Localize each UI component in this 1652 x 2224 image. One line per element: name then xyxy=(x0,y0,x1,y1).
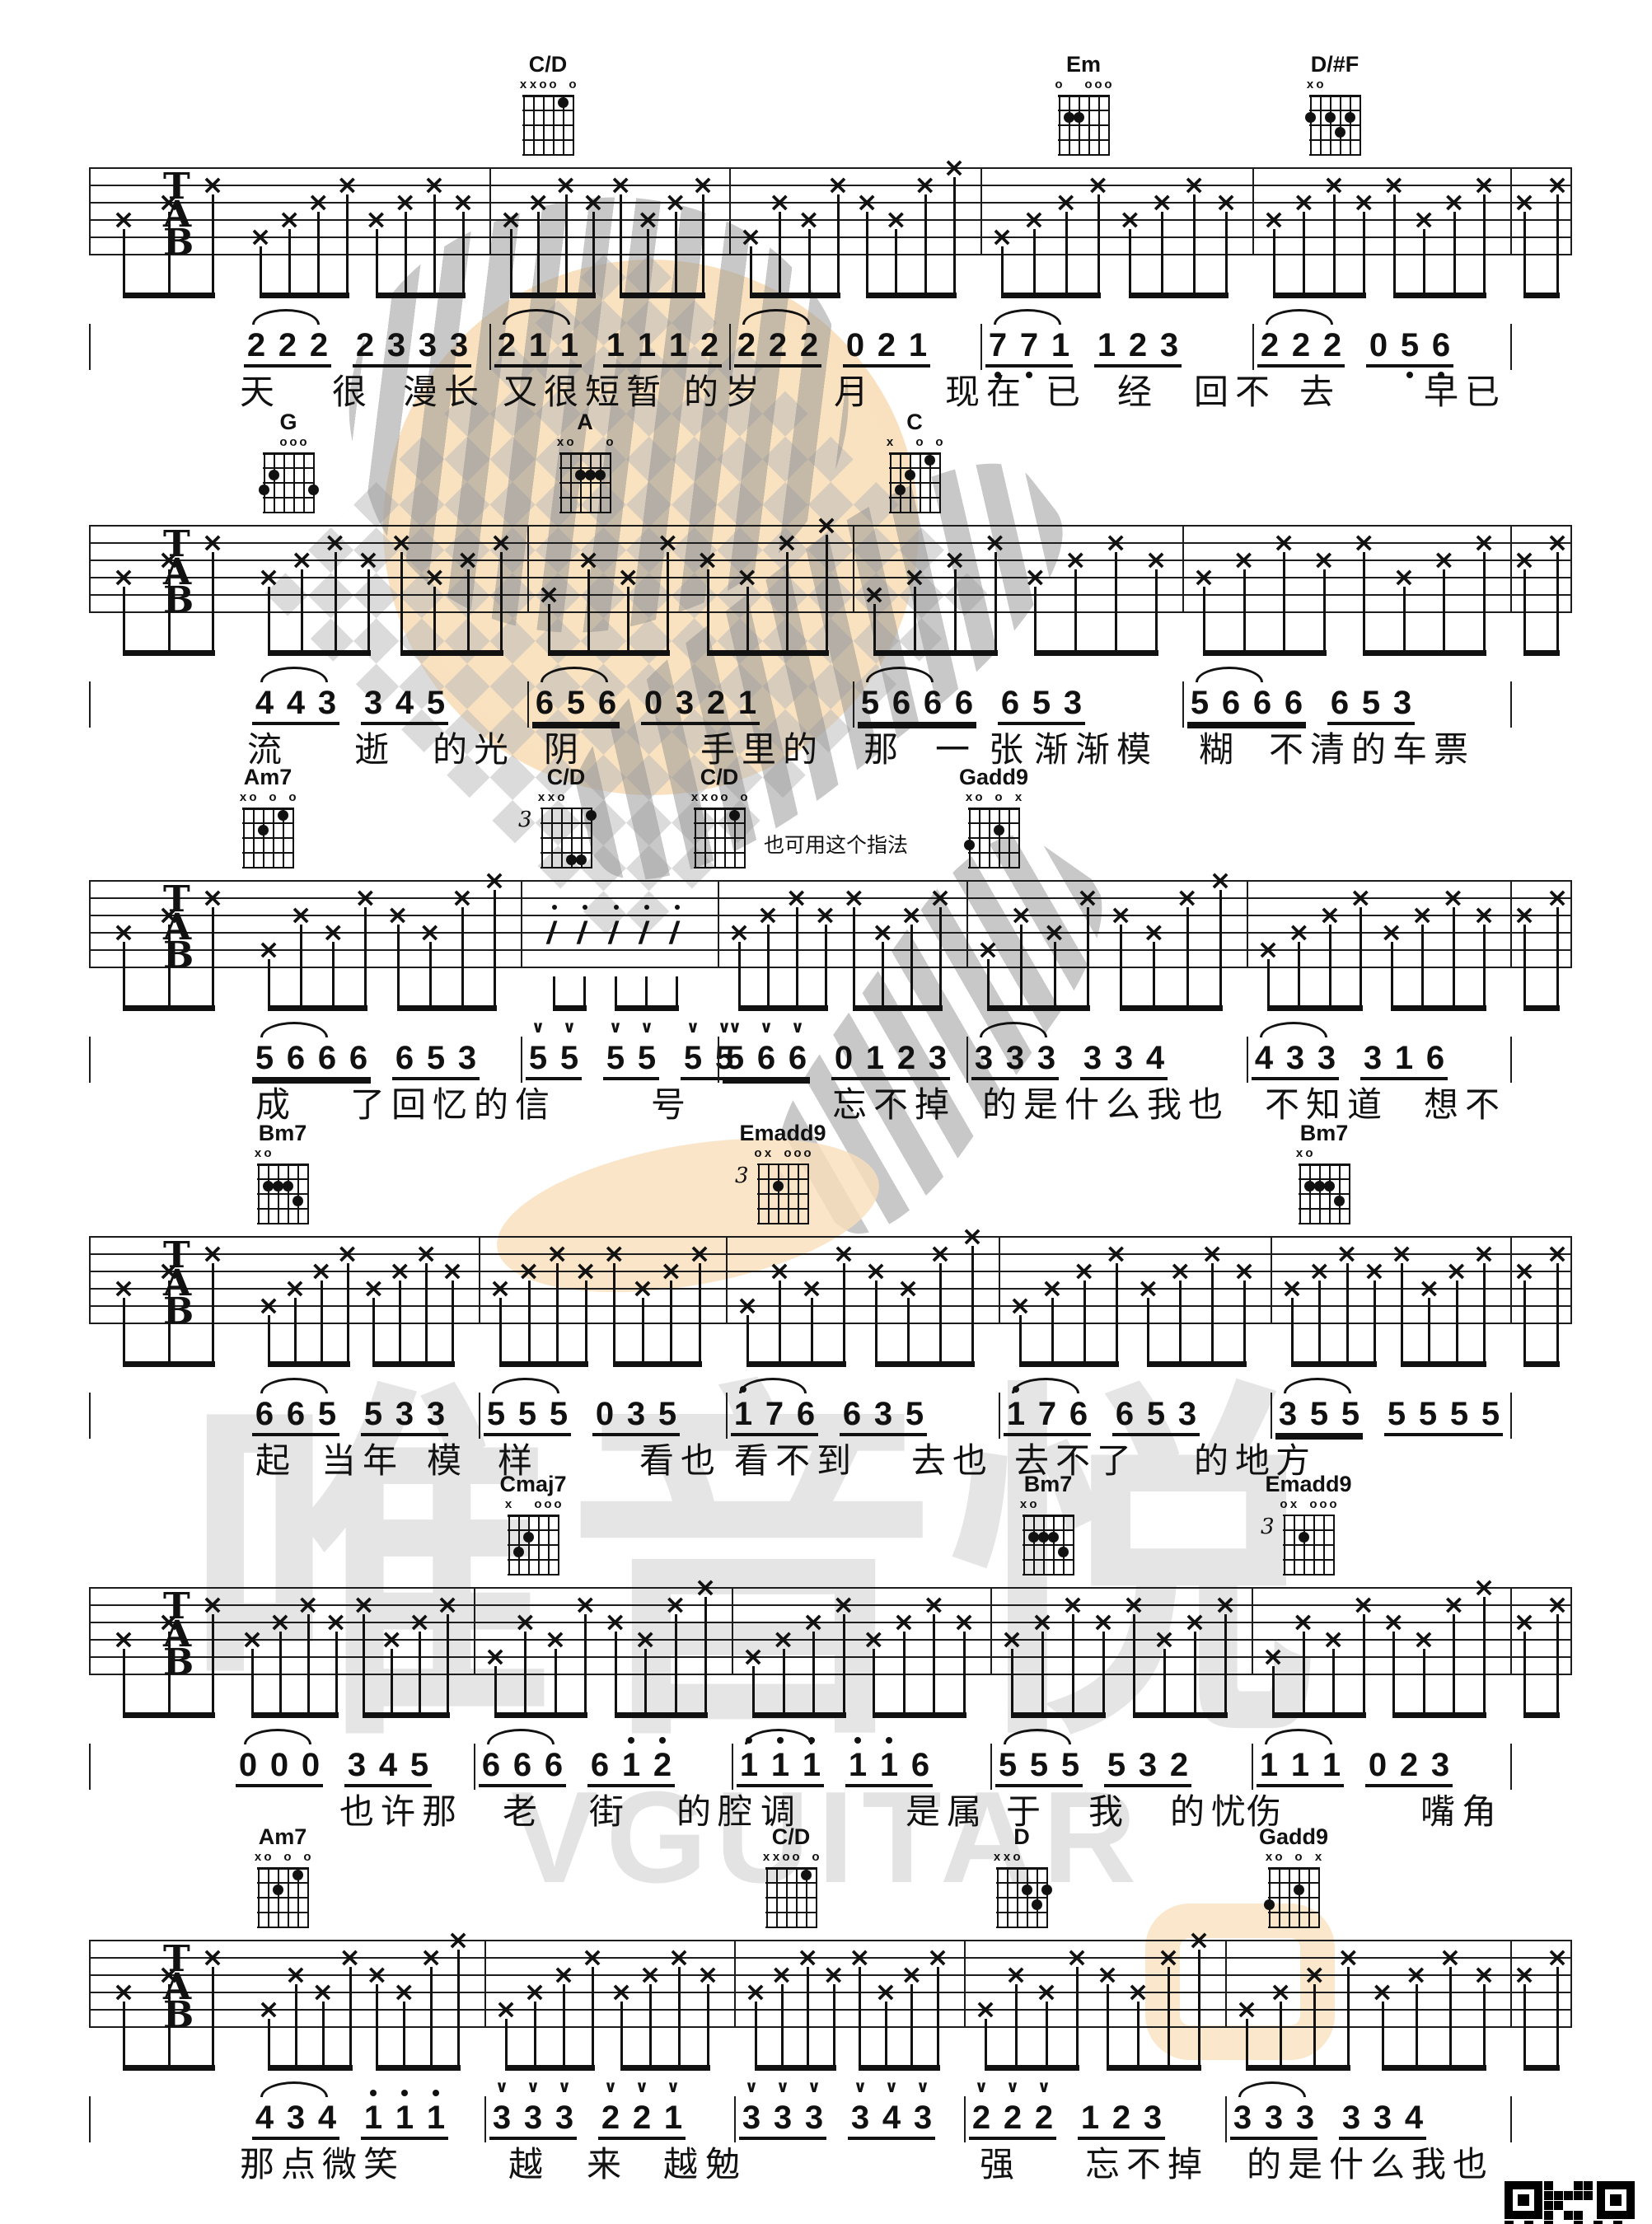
note-stem xyxy=(866,212,868,293)
beam xyxy=(123,650,215,656)
jianpu-note: 1 xyxy=(1322,1749,1341,1782)
note-stem xyxy=(885,2002,887,2065)
note-stem xyxy=(1225,212,1228,293)
jianpu-note: 6 xyxy=(590,1749,610,1782)
downstroke-mark: ∨ xyxy=(728,1019,742,1036)
beam xyxy=(1011,1712,1106,1718)
chord-grid-line xyxy=(757,1223,808,1224)
note-stem xyxy=(349,1967,352,2065)
jianpu-digit: 4 xyxy=(1254,1042,1274,1075)
jianpu-note: 4 xyxy=(1404,2101,1424,2134)
note-stem xyxy=(403,2002,405,2065)
chord-grid-line xyxy=(278,1867,279,1928)
chord-string-mark: x xyxy=(547,791,555,803)
note-stem xyxy=(268,587,270,650)
chord-grid-line xyxy=(278,1164,279,1224)
chord-grid-line xyxy=(1033,1515,1035,1576)
note-stem xyxy=(826,535,828,650)
jianpu-digit: 1 xyxy=(737,686,757,719)
note-stem xyxy=(954,569,957,650)
note-stem xyxy=(1051,1298,1054,1361)
note-stem xyxy=(1186,907,1189,1005)
chord-grid-line xyxy=(573,95,574,156)
note-stem xyxy=(924,194,927,293)
jianpu-beam-group: 334 xyxy=(1339,2101,1426,2140)
note-stem xyxy=(553,976,555,1005)
note-stem xyxy=(752,1666,755,1712)
note-stem xyxy=(1523,1281,1526,1361)
chord-diagram: Emoooo xyxy=(1044,52,1123,167)
jianpu-digit: 1 xyxy=(395,2101,414,2134)
note-stem xyxy=(1203,587,1205,650)
staff-line xyxy=(89,236,1572,238)
chord-string-mark: x xyxy=(519,78,527,91)
qr-module xyxy=(1554,2201,1563,2210)
chord-grid-line xyxy=(1283,1515,1334,1516)
jianpu-digit: 2 xyxy=(877,329,896,362)
chord-grid-line xyxy=(1283,1544,1334,1546)
note-stem xyxy=(1298,942,1300,1005)
jianpu-digit: 3 xyxy=(1037,1042,1056,1075)
note-stem xyxy=(620,194,622,293)
note-stem xyxy=(376,1984,378,2065)
staff-barline xyxy=(479,1236,480,1324)
chord-finger-dot xyxy=(905,470,915,480)
beam xyxy=(987,1005,1090,1011)
beam xyxy=(1147,1361,1247,1367)
jianpu-digit: 1 xyxy=(426,2101,446,2134)
chord-grid-line xyxy=(1108,95,1110,156)
beam xyxy=(1246,2065,1350,2071)
chord-string-mark: x xyxy=(1019,1498,1027,1510)
jianpu-beam-group: 0321 xyxy=(641,686,760,725)
jianpu-note: 7 xyxy=(1019,329,1039,362)
chord-grid-line xyxy=(1340,95,1341,156)
chord-grid-line xyxy=(1339,1164,1341,1224)
chord-grid-line xyxy=(297,1164,299,1224)
lyric: 来 xyxy=(587,2147,628,2182)
staff-line xyxy=(89,594,1572,596)
jianpu-note: 3 xyxy=(1392,686,1412,719)
jianpu-digit: 4 xyxy=(286,686,306,719)
jianpu-digit: 1 xyxy=(559,329,579,362)
downstroke-mark: ∨ xyxy=(531,1019,545,1036)
lyric: 张 xyxy=(989,733,1030,767)
note-stem xyxy=(268,1315,270,1361)
chord-grid-line xyxy=(1309,95,1360,97)
beam xyxy=(268,1005,367,1011)
note-stem xyxy=(843,1263,845,1361)
note-stem xyxy=(933,1614,935,1712)
jianpu-digit: 3 xyxy=(347,1749,367,1782)
strum-slash: / xyxy=(637,918,650,949)
note-stem xyxy=(1054,942,1056,1005)
jianpu-measure: 443345 xyxy=(252,686,526,725)
jianpu-digit: 2 xyxy=(1169,1749,1189,1782)
jianpu-note: 3 xyxy=(426,1398,446,1430)
chord-grid-line xyxy=(541,808,592,809)
chord-grid-line xyxy=(263,497,314,499)
lyric: 一 xyxy=(935,733,976,767)
beam xyxy=(123,1712,215,1718)
jianpu-digit: 3 xyxy=(873,1398,893,1430)
tie-arc xyxy=(1266,309,1333,325)
jianpu-digit: 5 xyxy=(549,1398,569,1430)
beam xyxy=(866,293,957,298)
jianpu-digit: 3 xyxy=(773,2101,793,2134)
note-stem xyxy=(779,1281,781,1361)
jianpu-note: 7 xyxy=(988,329,1008,362)
jianpu-note: 1 xyxy=(1080,2101,1100,2134)
jianpu-measure: 3∨3∨3∨2∨2∨1∨ xyxy=(489,2101,732,2140)
strum-slash: / xyxy=(667,918,681,949)
jianpu-note: 1 xyxy=(426,2101,446,2134)
numbers-barline xyxy=(474,1744,475,1790)
note-stem xyxy=(1015,1984,1018,2065)
beam xyxy=(123,1005,215,1011)
downstroke-mark: ∨ xyxy=(640,1019,653,1036)
jianpu-measure: 2222333 xyxy=(244,329,488,368)
jianpu-digit: 1 xyxy=(1006,1398,1026,1430)
staff-barline xyxy=(1510,167,1512,255)
chord-string-mark: o xyxy=(1013,1851,1021,1863)
jianpu-digit: 3 xyxy=(1005,1042,1025,1075)
jianpu-measure: 5666653 xyxy=(252,1042,519,1080)
chord-grid-line xyxy=(1079,95,1080,156)
chord-grid-line xyxy=(1046,1867,1048,1928)
jianpu-digit: 2 xyxy=(1260,329,1280,362)
jianpu-measure: 333334 xyxy=(1230,2101,1509,2140)
jianpu-measure: 5∨5∨5∨5∨5∨5∨ xyxy=(526,1042,716,1080)
jianpu-digit: 7 xyxy=(988,329,1008,362)
note-stem xyxy=(1374,1281,1376,1361)
note-stem xyxy=(1556,194,1559,293)
chord-grid-line xyxy=(292,808,294,869)
chord-string-mark: x xyxy=(690,791,699,803)
chord-grid-line xyxy=(580,452,582,513)
beam xyxy=(123,293,215,298)
jianpu-digit: 5 xyxy=(1387,1398,1406,1430)
note-stem xyxy=(212,552,214,650)
chord-string-mark: x xyxy=(556,436,564,448)
jianpu-note: 6∨ xyxy=(756,1042,776,1075)
lyric: 了回忆的信 xyxy=(350,1088,556,1122)
jianpu-digit: 3 xyxy=(1177,1398,1197,1430)
jianpu-digit: 1 xyxy=(1290,1749,1310,1782)
tie-arc xyxy=(742,309,810,325)
chord-finger-dot xyxy=(1022,1885,1032,1895)
chord-finger-dot xyxy=(595,470,606,480)
jianpu-note: 2 xyxy=(700,329,719,362)
chord-string-mark: o xyxy=(1329,1498,1337,1510)
jianpu-note: 5∨ xyxy=(606,1042,625,1075)
chord-grid-line xyxy=(996,1867,1047,1870)
octave-dot-high xyxy=(401,2090,408,2096)
jianpu-beam-group: 656 xyxy=(532,686,620,725)
chord-string-mark: o xyxy=(793,1147,802,1159)
jianpu-beam-group: 035 xyxy=(592,1398,680,1436)
jianpu-note: 3 xyxy=(317,686,337,719)
note-stem xyxy=(268,959,270,1005)
note-stem xyxy=(1001,246,1004,293)
jianpu-digit: 2 xyxy=(971,2101,991,2134)
downstroke-mark: ∨ xyxy=(791,1019,804,1036)
chord-string-mark: o xyxy=(566,436,574,448)
jianpu-note: 1 xyxy=(770,1749,790,1782)
chord-finger-dot xyxy=(1299,1532,1309,1543)
note-stem xyxy=(647,229,649,293)
note-stem xyxy=(1168,1967,1170,2065)
note-stem xyxy=(746,1315,749,1361)
jianpu-digit: 1 xyxy=(1051,329,1070,362)
jianpu-digit: 5 xyxy=(998,1749,1018,1782)
jianpu-note: 5 xyxy=(1190,686,1210,719)
note-stem xyxy=(1423,1649,1425,1712)
jianpu-note: 3 xyxy=(1063,686,1083,719)
jianpu-note: 5 xyxy=(998,1749,1018,1782)
downstroke-mark: ∨ xyxy=(563,1019,576,1036)
chord-grid-line xyxy=(559,512,611,513)
chord-grid-line xyxy=(1294,1515,1295,1576)
jianpu-digit: 5 xyxy=(1309,1398,1329,1430)
beam xyxy=(1133,1712,1228,1718)
beam xyxy=(875,1361,975,1367)
jianpu-note: 2∨ xyxy=(632,2101,652,2134)
chord-string-mark: x xyxy=(1003,1851,1011,1863)
chord-grid-line xyxy=(1283,1529,1334,1531)
note-stem xyxy=(364,907,367,1005)
note-stem xyxy=(367,569,370,650)
jianpu-digit: 3 xyxy=(286,2101,306,2134)
jianpu-note: 1 xyxy=(802,1749,821,1782)
note-stem xyxy=(1382,2002,1384,2065)
chord-grid-line xyxy=(1329,1164,1331,1224)
staff-barline xyxy=(999,1236,1000,1324)
chord-string-mark: x xyxy=(254,1147,262,1159)
chord-grid-line xyxy=(694,852,745,854)
chord-grid-line xyxy=(714,808,716,869)
chord-grid-line xyxy=(1308,1867,1310,1928)
strum-slash: / xyxy=(576,918,589,949)
staff-barline xyxy=(966,880,968,968)
beam xyxy=(1107,2065,1201,2071)
lyric: 起 xyxy=(255,1444,297,1478)
chord-diagram: C/Dxxooo xyxy=(508,52,587,167)
chord-string-mark: x xyxy=(1289,1498,1298,1510)
chord-grid-line xyxy=(757,1164,808,1165)
jianpu-measure: 433316 xyxy=(1252,1042,1509,1080)
note-stem xyxy=(702,194,704,293)
chord-grid-line xyxy=(1043,1515,1045,1576)
chord-grid-line xyxy=(768,1164,770,1224)
note-stem xyxy=(461,907,464,1005)
lyric: 的是什么我也 xyxy=(1247,2147,1494,2182)
lyric: 的光 xyxy=(433,733,515,767)
chord-grid-line xyxy=(724,808,726,869)
numbers-barline xyxy=(521,1037,522,1083)
jianpu-digit: 4 xyxy=(255,2101,274,2134)
jianpu-note: 5 xyxy=(1146,1398,1166,1430)
qr-finder-core xyxy=(1610,2194,1622,2206)
note-stem xyxy=(505,2019,508,2065)
chord-string-mark: x xyxy=(1295,1147,1303,1159)
note-stem xyxy=(494,890,496,1005)
chord-name: Bm7 xyxy=(1235,1121,1413,1146)
jianpu-digit: 6 xyxy=(481,1749,501,1782)
chord-diagram: Am7xooo xyxy=(243,1824,322,1940)
chord-grid-line xyxy=(243,808,245,869)
note-stem xyxy=(346,194,349,293)
note-stem xyxy=(1483,552,1486,650)
jianpu-measure: 5666653 xyxy=(1187,686,1509,725)
chord-grid-line xyxy=(307,1164,309,1224)
staff-barline xyxy=(89,525,91,613)
jianpu-note: 6∨ xyxy=(788,1042,807,1075)
note-stem xyxy=(583,976,586,1005)
qr-module xyxy=(1594,2221,1603,2224)
chord-string-mark: o xyxy=(549,78,557,91)
jianpu-note: 6 xyxy=(1221,686,1241,719)
jianpu-digit: 2 xyxy=(1322,329,1342,362)
jianpu-digit: 5 xyxy=(683,1042,703,1075)
jianpu-note: 3 xyxy=(1317,1042,1336,1075)
staff-barline xyxy=(1510,1587,1512,1675)
staff-line xyxy=(89,1323,1572,1324)
lyric: 看不到 xyxy=(734,1444,858,1478)
chord-grid-line xyxy=(1350,95,1351,156)
note-stem xyxy=(939,1263,942,1361)
sheet-page: 唯音悦 VGUITAR TABC/DxxoooEmooooD/#Fxo×××××… xyxy=(0,0,1652,2224)
chord-grid-line xyxy=(1023,1544,1074,1546)
jianpu-digit: 3 xyxy=(1363,1042,1383,1075)
note-stem xyxy=(1083,1281,1086,1361)
lyric: 手里的 xyxy=(700,733,824,767)
staff-barline xyxy=(729,167,731,255)
jianpu-note: 6 xyxy=(481,1749,501,1782)
jianpu-digit: 0 xyxy=(1369,329,1388,362)
chord-grid-line xyxy=(996,1897,1047,1899)
jianpu-beam-group: 653 xyxy=(998,686,1085,725)
note-stem xyxy=(1428,1298,1430,1361)
beam xyxy=(363,1712,450,1718)
jianpu-digit: 3 xyxy=(1285,1042,1305,1075)
jianpu-note: 6 xyxy=(597,686,617,719)
note-stem xyxy=(699,1263,701,1361)
jianpu-digit: 3 xyxy=(913,2101,933,2134)
jianpu-digit: 6 xyxy=(544,1749,564,1782)
note-stem xyxy=(391,1649,393,1712)
note-stem xyxy=(1556,552,1559,650)
chord-grid-line xyxy=(258,1867,260,1928)
jianpu-note: 5∨ xyxy=(559,1042,579,1075)
chord-string-mark: o xyxy=(1084,78,1093,91)
tie-arc xyxy=(541,667,608,682)
note-stem xyxy=(212,194,214,293)
jianpu-beam-group: 5666 xyxy=(1187,686,1306,725)
jianpu-note: 3 xyxy=(1264,2101,1284,2134)
chord-finger-dot xyxy=(269,470,279,480)
jianpu-digit: 1 xyxy=(1322,1749,1341,1782)
jianpu-digit: 1 xyxy=(668,329,688,362)
chord-name: C/D xyxy=(459,52,637,77)
jianpu-note: 5 xyxy=(1029,1749,1049,1782)
note-stem xyxy=(971,1246,974,1361)
jianpu-digit: 5 xyxy=(1029,1749,1049,1782)
chord-diagram: Bm7xo xyxy=(1009,1472,1088,1587)
chord-grid-line xyxy=(303,452,305,513)
chord-grid-line xyxy=(313,452,315,513)
note-stem xyxy=(796,907,798,1005)
chord-grid-line xyxy=(788,1164,789,1224)
note-stem xyxy=(615,1632,617,1712)
chord-string-mark: x xyxy=(254,1851,262,1863)
note-stem xyxy=(1163,1649,1166,1712)
jianpu-beam-group: 5555 xyxy=(1384,1398,1503,1436)
jianpu-note: 0 xyxy=(301,1749,321,1782)
beam xyxy=(873,1712,966,1718)
chord-grid-line xyxy=(765,1912,817,1913)
chord-string-mark: o xyxy=(299,436,307,448)
chord-string-mark: o xyxy=(1316,78,1324,91)
jianpu-beam-group: 555 xyxy=(995,1749,1083,1787)
note-stem xyxy=(1329,925,1331,1005)
chord-grid-line xyxy=(1299,1164,1301,1224)
jianpu-digit: 5 xyxy=(860,686,880,719)
numbers-barline xyxy=(1510,324,1512,370)
chord-diagram: D/#Fxo xyxy=(1295,52,1374,167)
downstroke-mark: ∨ xyxy=(667,2079,680,2095)
jianpu-digit: 2 xyxy=(309,329,329,362)
note-stem xyxy=(429,942,432,1005)
chord-diagram: C/Dxxooo xyxy=(751,1824,831,1940)
chord-string-mark: x xyxy=(529,78,537,91)
chord-grid-line xyxy=(541,867,592,869)
chord-grid-line xyxy=(1309,139,1360,141)
chord-grid-line xyxy=(758,1164,760,1224)
chord-grid-line xyxy=(778,1164,779,1224)
staff-barline xyxy=(1570,167,1572,255)
jianpu-digit: 5 xyxy=(255,1042,274,1075)
chord-grid-line xyxy=(258,1164,260,1224)
jianpu-digit: 5 xyxy=(637,1042,657,1075)
chord-grid-line xyxy=(1269,1867,1271,1928)
note-stem xyxy=(1161,212,1163,293)
jianpu-note: 3 xyxy=(873,1398,893,1430)
note-stem xyxy=(1392,1632,1395,1712)
chord-grid-line xyxy=(257,1897,308,1899)
staff-barline xyxy=(1570,1940,1572,2028)
note-stem xyxy=(168,1281,171,1361)
chord-name: C/D xyxy=(477,765,655,790)
note-stem xyxy=(1421,925,1424,1005)
chord-grid-line xyxy=(1023,1515,1025,1576)
chord-grid-line xyxy=(242,822,293,824)
beam xyxy=(376,2065,461,2071)
jianpu-beam-group: 443 xyxy=(252,686,339,725)
chord-diagram: Cmaj7xooo xyxy=(494,1472,573,1587)
note-stem xyxy=(873,1649,875,1712)
staff-barline xyxy=(964,1940,966,2028)
jianpu-digit: 3 xyxy=(974,1042,994,1075)
jianpu-note: 2 xyxy=(1111,2101,1131,2134)
beam xyxy=(1391,1005,1486,1011)
chord-finger-dot xyxy=(1305,112,1316,123)
jianpu-digit: 2 xyxy=(601,2101,620,2134)
qr-module xyxy=(1544,2221,1553,2224)
downstroke-mark: ∨ xyxy=(776,2079,789,2095)
jianpu-note: 1 xyxy=(879,1749,899,1782)
jianpu-digit: 5 xyxy=(566,686,586,719)
